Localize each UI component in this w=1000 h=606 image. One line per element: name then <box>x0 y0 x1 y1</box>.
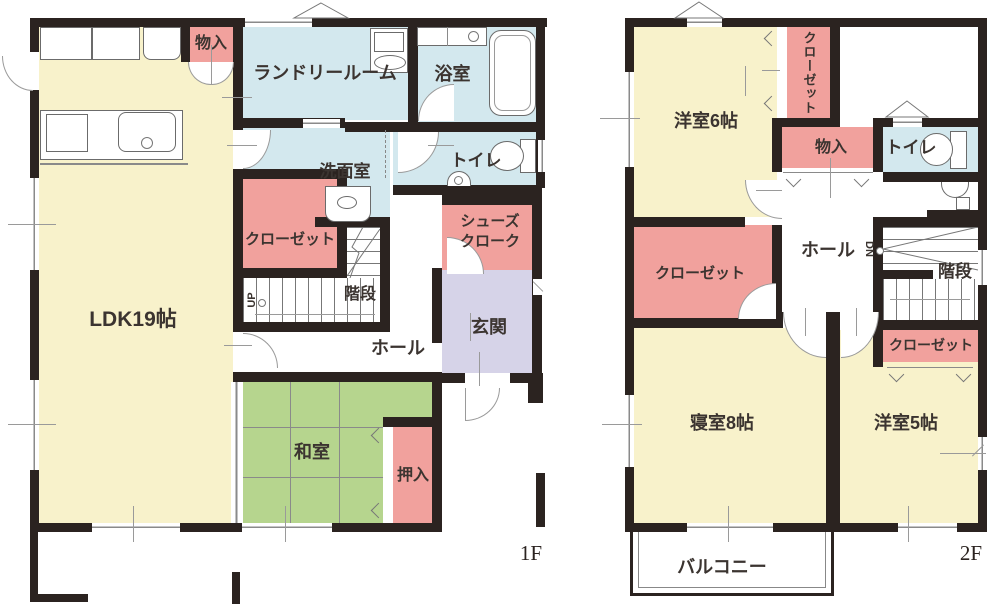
terrace-wall <box>30 594 88 602</box>
bath-counter-divider <box>447 27 448 46</box>
label-yoshitsu6: 洋室6帖 <box>646 110 766 132</box>
door-arrow <box>470 313 471 341</box>
door-leaf <box>805 308 806 336</box>
label-closet-north: クローゼット <box>797 30 819 116</box>
door-arrow <box>428 145 454 146</box>
hand-basin-faucet <box>454 176 463 185</box>
label-senmen: 洗面室 <box>305 161 385 183</box>
closet-folding-door <box>777 27 787 118</box>
door-arrow <box>227 145 257 146</box>
wall <box>393 185 538 195</box>
wall <box>442 373 465 383</box>
room-ldk <box>39 27 233 523</box>
wall <box>432 268 442 343</box>
vent-triangle-icon <box>294 3 348 18</box>
wall <box>233 372 442 382</box>
entry-door-swing <box>465 388 500 421</box>
window <box>898 523 957 532</box>
label-genkan: 玄関 <box>449 316 529 338</box>
label-washitsu: 和室 <box>272 441 352 463</box>
dimension-tick <box>8 224 56 225</box>
label-monoire-2f: 物入 <box>806 137 856 159</box>
folding-door-icon <box>786 172 802 188</box>
hand-basin-cabinet <box>956 197 970 210</box>
wall <box>233 268 347 278</box>
label-closet-1f: クローゼット <box>243 229 337 251</box>
wall <box>442 195 538 205</box>
vent-triangle-icon <box>886 101 928 117</box>
door-arrow <box>222 97 252 98</box>
label-hall-1f: ホール <box>358 337 438 359</box>
porch-wall <box>536 473 545 527</box>
label-toilet-2f: トイレ <box>885 137 937 159</box>
label-up: UP <box>235 288 269 312</box>
label-dn: DN <box>856 238 882 260</box>
stairs-diagonal <box>347 227 380 278</box>
dimension-tick <box>602 424 642 425</box>
dimension-tick <box>745 66 746 96</box>
wall <box>345 122 538 132</box>
door-swing <box>2 56 33 91</box>
opening-dashed-line <box>385 130 386 178</box>
wall <box>772 118 840 127</box>
label-closet-west: クローゼット <box>640 263 760 285</box>
terrace-wall <box>232 572 240 604</box>
door-swing <box>243 333 278 368</box>
hand-basin <box>941 182 969 198</box>
window <box>92 523 180 532</box>
door-leaf <box>856 308 857 336</box>
dimension-tick <box>600 118 640 119</box>
shower-icon <box>468 31 479 42</box>
dimension-tick <box>728 506 729 542</box>
door-leaf <box>465 388 466 420</box>
wall <box>826 312 840 523</box>
window <box>625 395 634 467</box>
stair-arrow <box>890 299 970 300</box>
door-arrow <box>479 352 480 386</box>
wall <box>625 18 987 27</box>
window <box>242 523 332 532</box>
dimension-tick <box>8 424 56 425</box>
label-laundry: ランドリールーム <box>240 62 410 84</box>
window <box>625 72 634 167</box>
folding-door-line <box>887 367 973 368</box>
label-shoes-2: クローク <box>452 231 528 252</box>
sliding-door <box>231 382 242 523</box>
floor-plan: 物入 ランドリールーム 浴室 洗面室 トイレ クローゼット シューズ クローク … <box>0 0 1000 606</box>
dimension-tick <box>940 453 986 454</box>
dimension-tick <box>211 45 212 85</box>
label-toilet-1f: トイレ <box>436 150 516 172</box>
window <box>245 18 312 27</box>
wall <box>873 217 978 227</box>
label-shoes-1: シューズ <box>452 211 528 232</box>
folding-door-tick <box>762 70 780 71</box>
window <box>30 380 39 470</box>
wall <box>772 118 782 172</box>
label-ldk: LDK19帖 <box>53 308 213 333</box>
interior-window <box>303 119 340 128</box>
wall <box>873 217 883 322</box>
wall <box>873 118 883 172</box>
wall <box>625 217 745 227</box>
window <box>893 118 922 127</box>
door-arrow <box>756 190 782 191</box>
wall <box>383 417 442 427</box>
window <box>687 523 773 532</box>
wall <box>380 217 390 332</box>
window <box>538 140 547 172</box>
label-yoshitsu5: 洋室5帖 <box>846 412 966 435</box>
counter-edge <box>40 163 188 165</box>
wall <box>432 373 442 527</box>
stove <box>46 114 88 152</box>
tatami-line <box>243 477 383 478</box>
window <box>687 18 722 27</box>
label-bath: 浴室 <box>415 63 490 85</box>
dimension-tick <box>908 506 909 542</box>
floor-label-1f: 1F <box>505 542 557 564</box>
label-bedroom: 寝室8帖 <box>652 412 792 435</box>
wall <box>883 172 978 182</box>
bathtub-inner <box>494 35 531 111</box>
wall <box>873 320 978 330</box>
stair-arrow <box>255 314 375 315</box>
folding-door-icon <box>854 172 870 188</box>
dimension-tick <box>133 506 134 542</box>
label-closet-small: クローゼット <box>885 335 977 355</box>
terrace-wall <box>30 532 38 600</box>
kitchen-cabinet <box>40 27 92 60</box>
refrigerator <box>143 27 181 60</box>
label-oshiire: 押入 <box>391 466 435 486</box>
dimension-tick <box>285 506 286 542</box>
door-arrow <box>224 345 252 346</box>
kitchen-cabinet <box>92 27 140 60</box>
label-balcony: バルコニー <box>652 556 792 578</box>
wall <box>233 322 390 332</box>
washbasin-bowl <box>337 196 357 209</box>
wall <box>528 373 543 403</box>
floor-label-2f: 2F <box>945 542 997 564</box>
washing-machine-lid <box>374 32 404 52</box>
wall <box>625 318 783 328</box>
label-stairs-2f: 階段 <box>925 261 985 283</box>
vent-triangle-icon <box>675 2 723 18</box>
dimension-tick <box>830 158 831 198</box>
label-stairs-1f: 階段 <box>330 284 390 306</box>
wall <box>830 18 840 127</box>
faucet-icon <box>141 137 153 149</box>
